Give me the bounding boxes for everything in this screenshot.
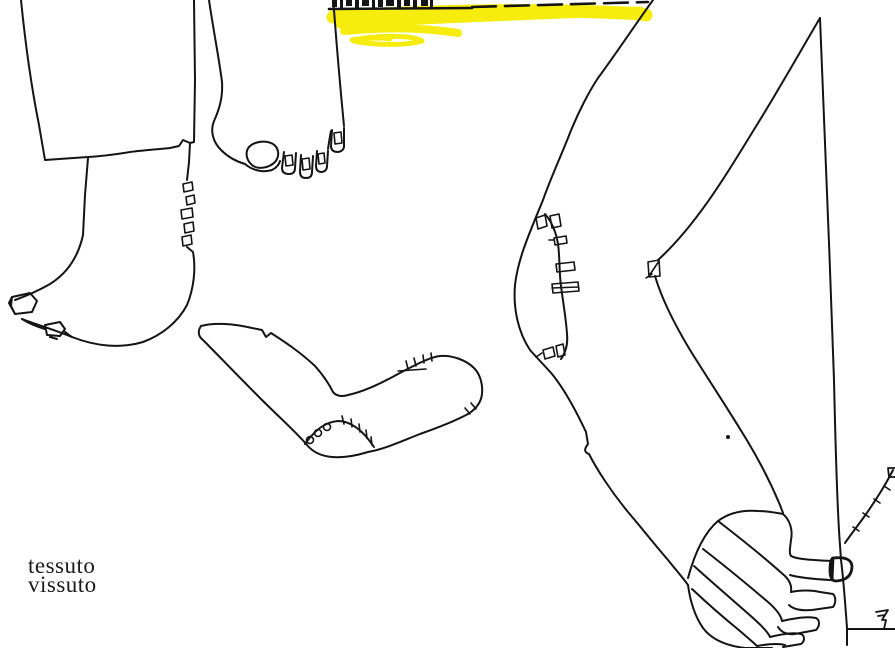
arm-with-fist-pointing-finger	[688, 511, 852, 648]
highlight-stroke-3	[344, 29, 458, 33]
big-toenail	[247, 142, 279, 168]
finger-line-1	[718, 521, 791, 592]
artwork-canvas: tessuto vissuto	[0, 0, 895, 648]
back-of-hand	[688, 511, 783, 578]
index-finger-top	[783, 514, 832, 561]
signature-line-2: vissuto	[28, 575, 97, 594]
ink-layer	[9, 0, 895, 648]
highlight-stroke-loop	[352, 36, 422, 44]
fingertip-step-1	[789, 591, 835, 611]
heel-stitch-marks	[181, 182, 195, 246]
knot-dot	[726, 435, 730, 439]
fingertip-step-4	[757, 644, 785, 646]
inner-forearm-line	[655, 276, 783, 513]
sleeve-cuff-stitches	[845, 468, 895, 543]
line-drawing	[0, 0, 895, 648]
knee-darn-patch	[536, 214, 579, 359]
index-finger-bottom	[790, 575, 830, 580]
bare-foot-profile-with-big-toe	[9, 143, 195, 346]
hem-line-solid	[329, 8, 472, 9]
leg-with-mended-knee	[515, 0, 847, 645]
leg-outer-contour	[515, 0, 688, 585]
signature-text: tessuto vissuto	[28, 556, 97, 594]
yellow-highlighter-stroke	[333, 11, 646, 45]
inner-thigh-line	[658, 18, 820, 260]
outer-arm-line	[820, 18, 847, 645]
bare-foot-front-with-toes	[209, 0, 344, 178]
trouser-hem	[21, 0, 195, 160]
pointer-glyph	[847, 610, 895, 629]
darned-sock	[199, 324, 482, 457]
fingertip-step-2	[778, 617, 819, 634]
finger-line-4	[692, 589, 757, 646]
elbow-mark	[646, 260, 660, 278]
